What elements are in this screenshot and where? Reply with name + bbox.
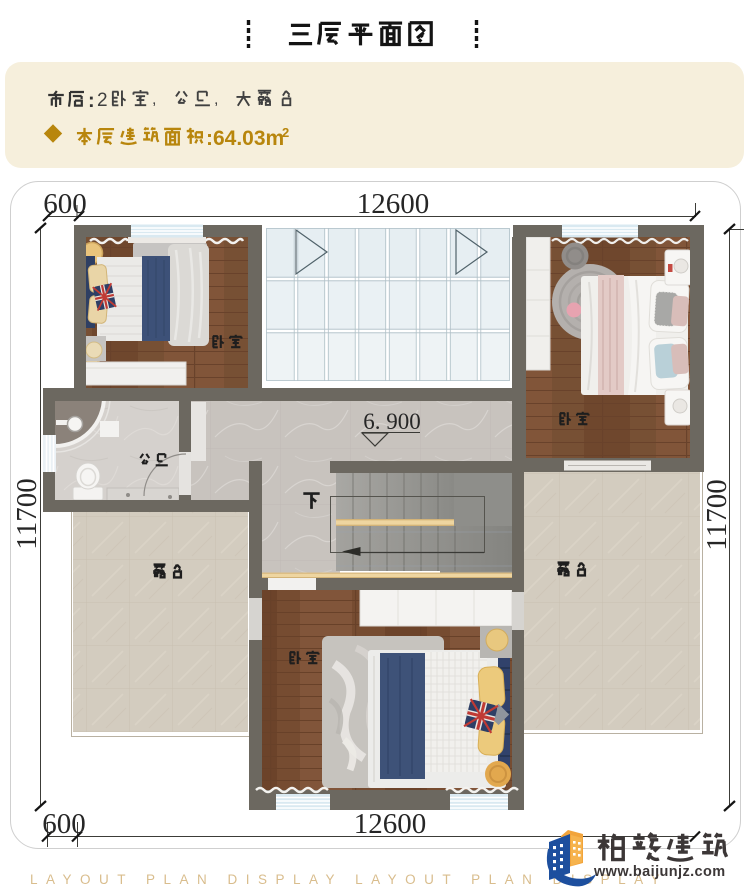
- svg-text:6. 900: 6. 900: [363, 409, 421, 434]
- svg-text::: :: [88, 90, 95, 112]
- svg-text:12600: 12600: [357, 188, 430, 220]
- svg-text:2: 2: [97, 90, 108, 111]
- svg-text:,: ,: [214, 91, 218, 108]
- svg-text:,: ,: [152, 91, 156, 108]
- svg-text:11700: 11700: [11, 478, 43, 549]
- svg-text::64.03m: :64.03m: [206, 127, 284, 150]
- svg-text:11700: 11700: [701, 479, 733, 550]
- svg-text:www.baijunjz.com: www.baijunjz.com: [593, 864, 726, 880]
- svg-text:12600: 12600: [354, 808, 427, 840]
- svg-text:600: 600: [43, 188, 87, 220]
- svg-text:600: 600: [42, 808, 86, 840]
- svg-text:2: 2: [282, 125, 289, 140]
